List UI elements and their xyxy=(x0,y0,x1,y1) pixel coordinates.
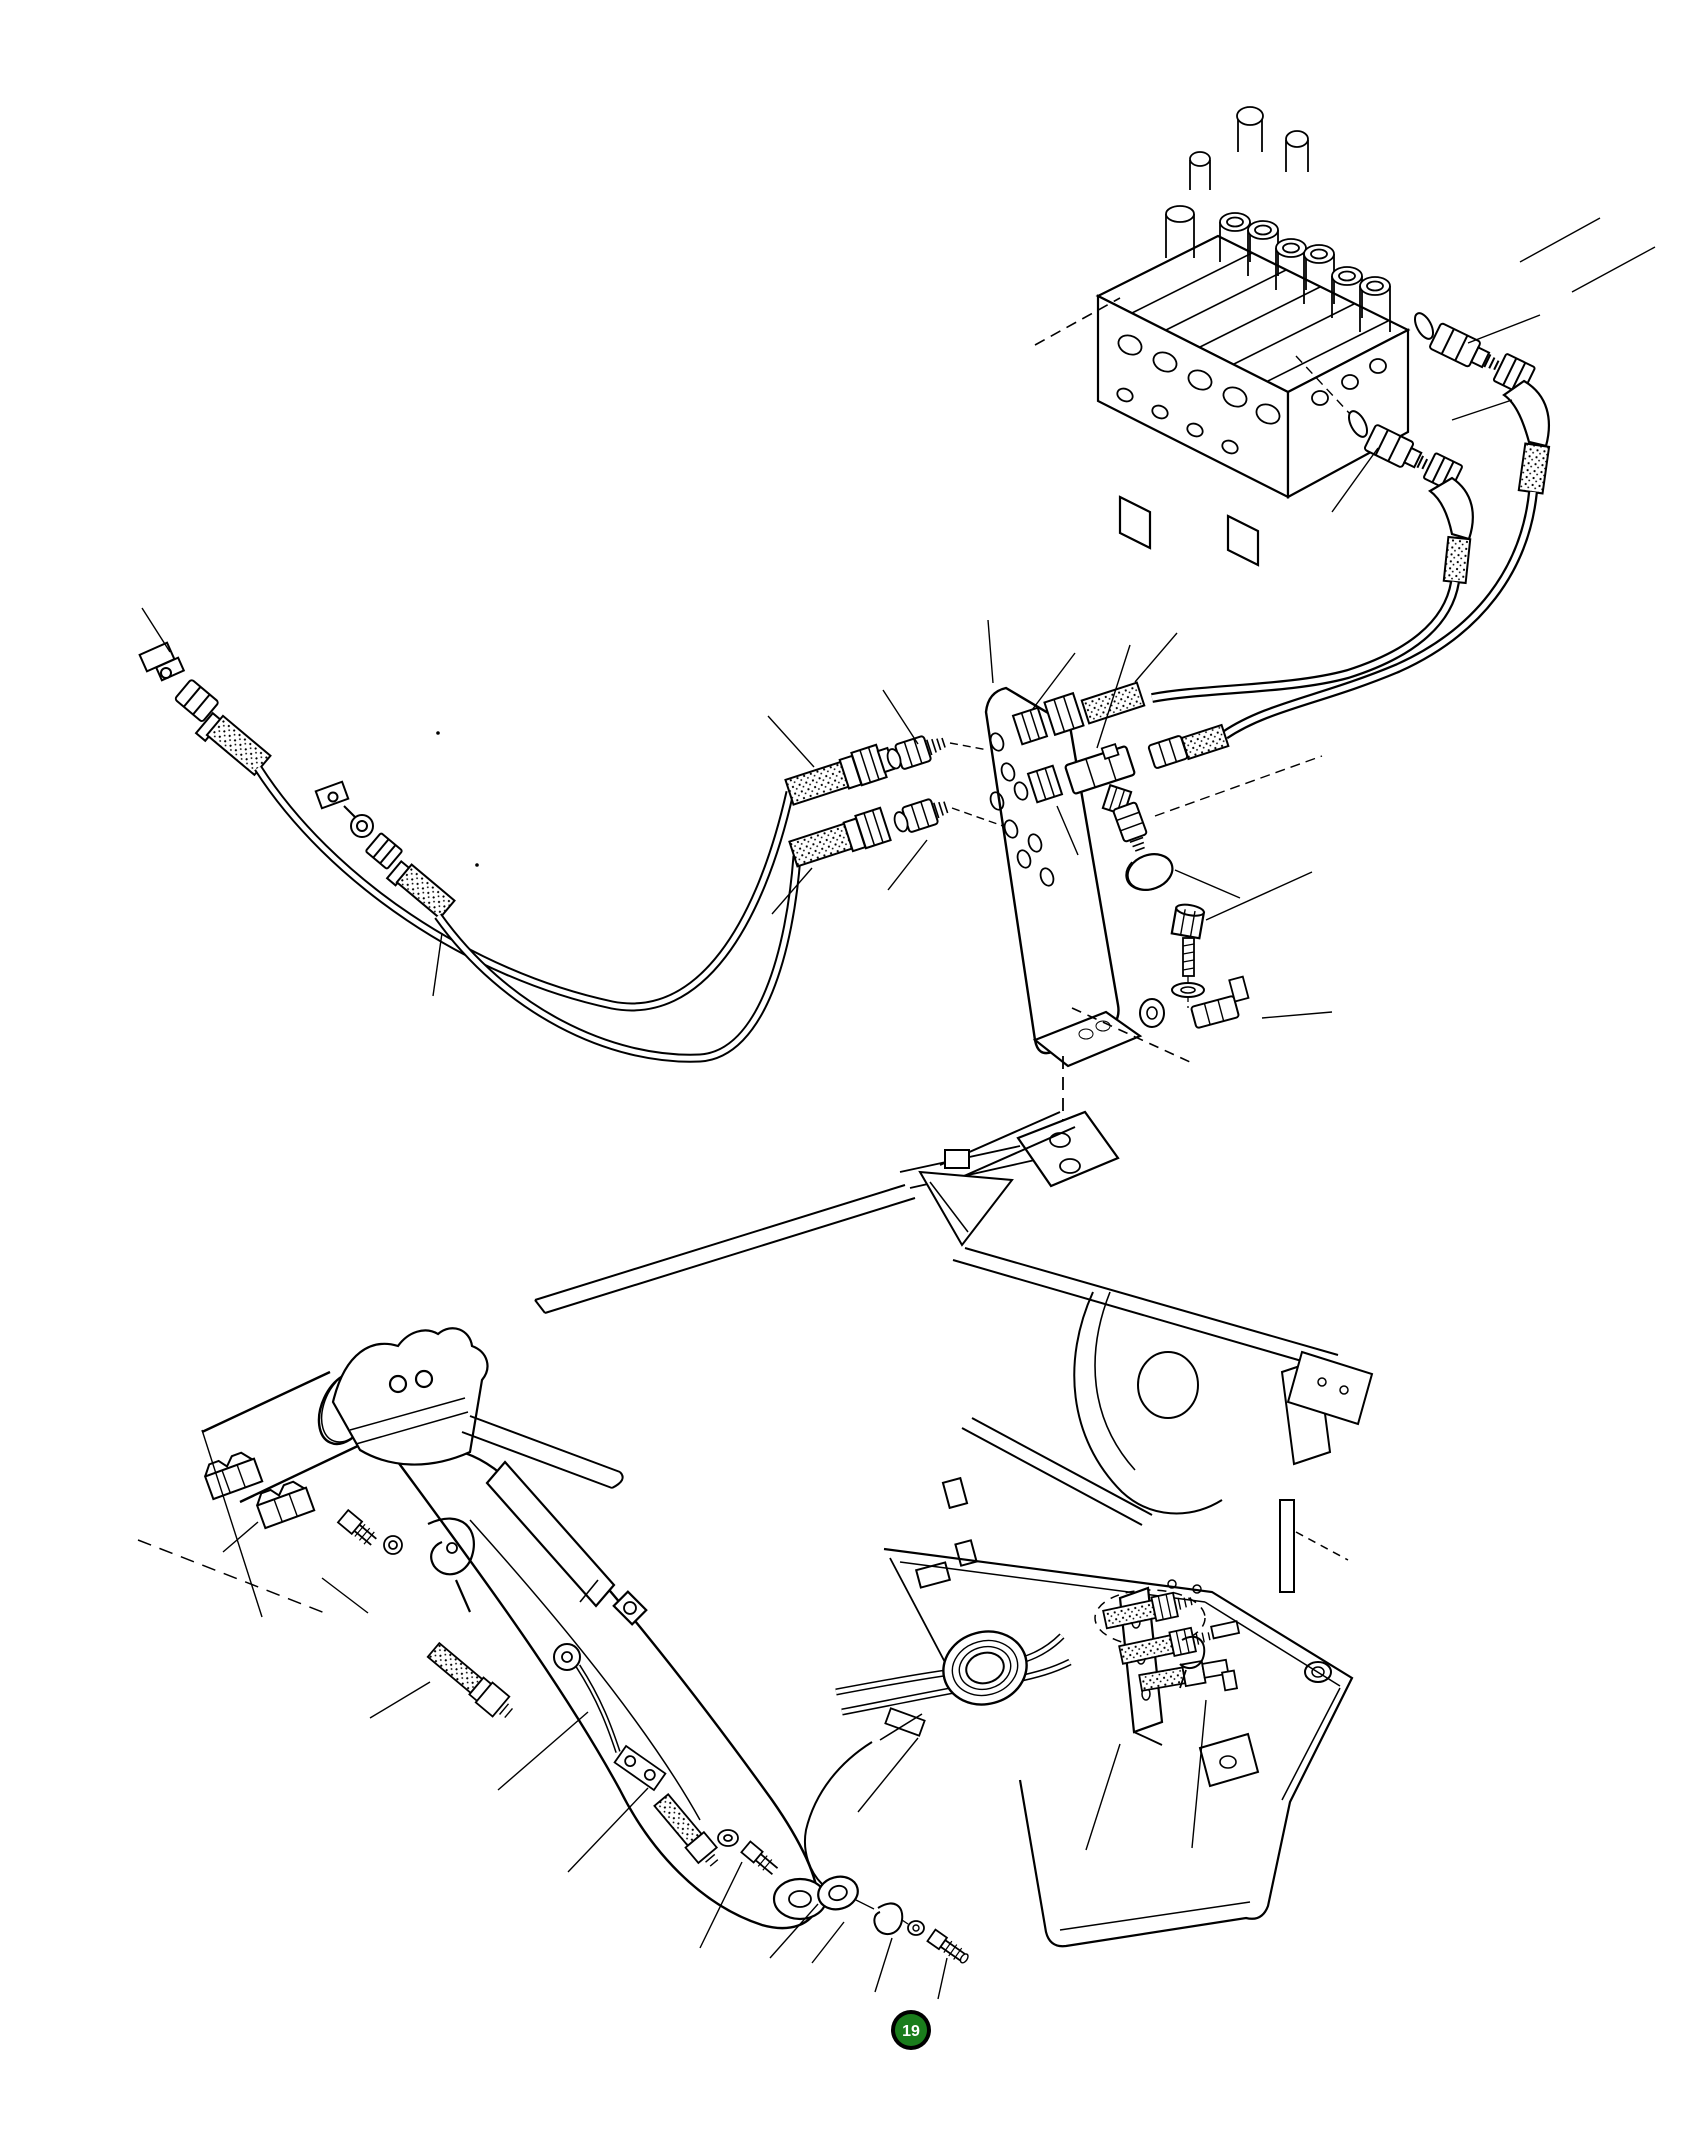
clamp-bolt xyxy=(338,1510,402,1554)
long-hose-1 xyxy=(258,768,790,1007)
bottom-clamp-parts xyxy=(815,1872,971,1965)
hydraulic-hose-lower xyxy=(1152,582,1455,698)
connector-row2 xyxy=(891,795,949,836)
boom-assembly xyxy=(202,1328,826,1928)
cap-fitting xyxy=(1123,848,1178,896)
hose-sleeve xyxy=(1519,444,1549,494)
long-hose-2 xyxy=(438,856,797,1058)
callout-19-badge[interactable]: 19 xyxy=(891,2010,931,2050)
exploded-parts-diagram: 19 xyxy=(0,0,1688,2150)
grommet xyxy=(935,1622,1035,1713)
control-valve-assembly xyxy=(1035,107,1408,565)
hose-cluster-left xyxy=(140,643,455,919)
bracket-fittings-left xyxy=(785,730,1003,866)
small-bolt xyxy=(927,1930,970,1966)
washer xyxy=(1172,983,1204,997)
mounting-bracket xyxy=(986,688,1140,1066)
hydraulic-hose-upper xyxy=(1225,492,1533,735)
bulkhead-fittings xyxy=(1103,1590,1241,1705)
elbow-fitting-lower xyxy=(1345,408,1473,583)
hose-to-bottom xyxy=(805,1708,925,1884)
diagram-page: 19 xyxy=(0,0,1688,2150)
hose-clamp-blocks xyxy=(202,1449,314,1528)
o-ring xyxy=(1411,310,1437,341)
hose-end-row2 xyxy=(789,808,890,867)
hose-end-clamp-1 xyxy=(140,643,271,775)
plug-fitting xyxy=(1113,802,1151,853)
hose-sleeve xyxy=(1444,537,1470,583)
callout-19-label: 19 xyxy=(902,2023,920,2040)
small-clamp xyxy=(874,1904,902,1935)
leader-lines xyxy=(142,218,1655,1999)
connector-row1 xyxy=(884,730,947,773)
lower-clamp xyxy=(1140,999,1164,1027)
